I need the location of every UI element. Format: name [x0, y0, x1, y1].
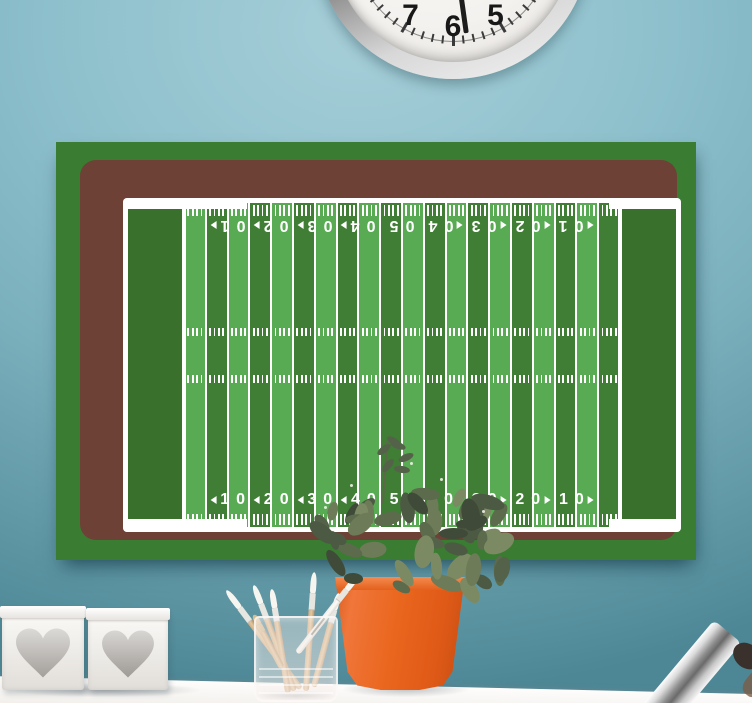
hash-mark-upper [296, 328, 298, 336]
hash-mark-upper [615, 328, 617, 336]
sideline-tick-top [449, 205, 451, 216]
sideline-tick-bottom [283, 514, 285, 525]
hash-mark-upper [266, 328, 268, 336]
hash-mark-lower [196, 375, 198, 383]
goal-line-right [618, 203, 622, 527]
hash-mark-upper [318, 328, 320, 336]
yard-digit: 0 [406, 217, 415, 233]
hash-mark-lower [462, 375, 464, 383]
sideline-tick-top [362, 205, 364, 216]
sideline-tick-bottom [593, 514, 595, 525]
yard-arrow-left [210, 221, 216, 229]
hash-mark-upper [480, 328, 482, 336]
hash-mark-upper [192, 328, 194, 336]
hash-mark-upper [410, 328, 412, 336]
yard-digit: 1 [559, 492, 568, 508]
sideline-tick-top [262, 205, 264, 216]
hash-mark-lower [353, 375, 355, 383]
five-yard-stripe [184, 203, 206, 527]
hash-mark-upper [606, 328, 608, 336]
plant-white-speck [440, 478, 443, 481]
hash-mark-lower [610, 375, 612, 383]
yard-digits: 50 [390, 217, 415, 233]
plant-white-speck [324, 506, 327, 509]
hash-mark-upper [427, 328, 429, 336]
yard-arrow-right [501, 221, 507, 229]
hash-mark-lower [362, 375, 364, 383]
sideline-tick-bottom [545, 514, 547, 525]
yard-number: 40 [341, 217, 376, 233]
sideline-tick-top [606, 205, 608, 216]
hash-mark-upper [253, 328, 255, 336]
sideline-tick-top [331, 205, 333, 216]
yard-digit: 0 [280, 492, 289, 508]
sideline-tick-top [453, 205, 455, 216]
yard-digit: 0 [488, 217, 497, 233]
hash-mark-upper [375, 328, 377, 336]
hash-mark-lower [327, 375, 329, 383]
hash-mark-lower [602, 375, 604, 383]
hash-mark-lower [266, 375, 268, 383]
hash-mark-upper [218, 328, 220, 336]
yard-number: 50 [390, 217, 415, 233]
yard-number: 20 [254, 217, 289, 233]
sideline-tick-top [593, 205, 595, 216]
hash-mark-upper [589, 328, 591, 336]
heart-box-right [88, 612, 168, 690]
sideline-tick-top [514, 205, 516, 216]
hash-mark-upper [545, 328, 547, 336]
yard-digit: 1 [220, 217, 229, 233]
sideline-tick-top [392, 205, 394, 216]
sideline-tick-bottom [536, 514, 538, 525]
cup-ridges [259, 668, 333, 696]
sideline-tick-top [384, 205, 386, 216]
hash-mark-lower [240, 375, 242, 383]
sideline-tick-top [323, 205, 325, 216]
hash-mark-lower [475, 375, 477, 383]
sideline-tick-top [549, 205, 551, 216]
hash-mark-lower [279, 375, 281, 383]
hash-mark-upper [371, 328, 373, 336]
hash-mark-lower [414, 375, 416, 383]
hash-mark-lower [209, 375, 211, 383]
five-yard-stripe [206, 203, 228, 527]
hash-mark-lower [497, 375, 499, 383]
sideline-tick-top [458, 205, 460, 216]
sideline-tick-top [340, 205, 342, 216]
room-scene: 765 102030405040302010102030405040302010 [0, 0, 752, 703]
hash-mark-lower [405, 375, 407, 383]
hash-mark-upper [501, 328, 503, 336]
sideline-tick-top [536, 205, 538, 216]
plant-white-speck [410, 462, 413, 465]
yard-digits: 30 [307, 217, 332, 233]
yard-line [575, 203, 577, 527]
yard-digit: 3 [472, 217, 481, 233]
thick-border-bottom-left [123, 519, 247, 532]
sideline-tick-bottom [275, 514, 277, 525]
sideline-tick-top [405, 205, 407, 216]
sideline-tick-top [296, 205, 298, 216]
hash-mark-upper [449, 328, 451, 336]
sideline-tick-bottom [279, 514, 281, 525]
yard-arrow-right [588, 496, 594, 504]
yard-digit: 0 [531, 217, 540, 233]
hash-mark-lower [244, 375, 246, 383]
plant-leaf [326, 501, 341, 522]
plant-leaf [373, 509, 403, 528]
yard-digit: 0 [236, 217, 245, 233]
sideline-tick-top [318, 205, 320, 216]
yard-digit: 4 [351, 217, 360, 233]
hash-mark-lower [436, 375, 438, 383]
sideline-tick-top [584, 205, 586, 216]
hash-mark-upper [279, 328, 281, 336]
hash-mark-lower [541, 375, 543, 383]
hash-mark-lower [318, 375, 320, 383]
hash-mark-upper [462, 328, 464, 336]
yard-digit: 0 [236, 492, 245, 508]
plant-leaf [358, 540, 387, 558]
yard-number: 20 [515, 492, 550, 508]
hash-mark-upper [384, 328, 386, 336]
yard-digit: 0 [444, 217, 453, 233]
hash-mark-lower [519, 375, 521, 383]
sideline-tick-top [414, 205, 416, 216]
sideline-tick-top [558, 205, 560, 216]
hash-mark-upper [523, 328, 525, 336]
hash-mark-lower [528, 375, 530, 383]
yard-digits: 30 [472, 217, 497, 233]
hash-mark-upper [262, 328, 264, 336]
clock-number: 5 [487, 0, 504, 33]
sideline-tick-bottom [571, 514, 573, 525]
hash-mark-upper [305, 328, 307, 336]
yard-number: 20 [515, 217, 550, 233]
hash-mark-lower [384, 375, 386, 383]
yard-digits: 20 [515, 492, 540, 508]
sideline-tick-top [519, 205, 521, 216]
hash-mark-upper [235, 328, 237, 336]
hash-mark-upper [240, 328, 242, 336]
sideline-tick-top [253, 205, 255, 216]
hash-mark-lower [253, 375, 255, 383]
hash-mark-lower [388, 375, 390, 383]
hash-mark-lower [589, 375, 591, 383]
sideline-tick-bottom [266, 514, 268, 525]
yard-arrow-right [457, 221, 463, 229]
yard-digits: 10 [559, 492, 584, 508]
hash-mark-upper [366, 328, 368, 336]
hash-mark-upper [344, 328, 346, 336]
yard-number: 10 [559, 217, 594, 233]
yard-digit: 0 [531, 492, 540, 508]
potted-plant [290, 432, 514, 608]
sideline-tick-top [375, 205, 377, 216]
sideline-tick-top [266, 205, 268, 216]
hash-mark-lower [262, 375, 264, 383]
sideline-tick-top [419, 205, 421, 216]
hash-mark-lower [471, 375, 473, 383]
yard-arrow-left [297, 221, 303, 229]
hash-mark-lower [606, 375, 608, 383]
clock-number: 7 [402, 0, 419, 33]
hash-mark-lower [514, 375, 516, 383]
yard-digit: 0 [575, 217, 584, 233]
wall-clock: 765 [316, 0, 590, 79]
hash-mark-lower [187, 375, 189, 383]
sideline-tick-top [567, 205, 569, 216]
hash-mark-upper [310, 328, 312, 336]
yard-number: 30 [297, 217, 332, 233]
hash-mark-upper [593, 328, 595, 336]
hash-mark-lower [545, 375, 547, 383]
hash-mark-upper [301, 328, 303, 336]
yard-digit: 0 [280, 217, 289, 233]
hash-mark-upper [231, 328, 233, 336]
hash-mark-upper [283, 328, 285, 336]
hash-mark-lower [615, 375, 617, 383]
hash-mark-upper [436, 328, 438, 336]
hash-mark-upper [493, 328, 495, 336]
yard-line [227, 203, 229, 527]
sideline-tick-bottom [541, 514, 543, 525]
hash-mark-lower [222, 375, 224, 383]
yard-line [554, 203, 556, 527]
hash-mark-upper [580, 328, 582, 336]
hash-mark-upper [327, 328, 329, 336]
sideline-tick-bottom [549, 514, 551, 525]
yard-digits: 20 [264, 492, 289, 508]
yard-digits: 20 [515, 217, 540, 233]
glass-cup [254, 616, 338, 702]
hash-mark-lower [493, 375, 495, 383]
yard-digits: 10 [559, 217, 584, 233]
hash-mark-upper [432, 328, 434, 336]
yard-digit: 1 [220, 492, 229, 508]
five-yard-stripe [533, 203, 555, 527]
sideline-tick-bottom [262, 514, 264, 525]
chrome-reflection [739, 665, 752, 701]
hash-mark-lower [275, 375, 277, 383]
hash-mark-upper [288, 328, 290, 336]
hash-mark-upper [536, 328, 538, 336]
hash-mark-upper [519, 328, 521, 336]
thick-border-bottom-right [609, 519, 681, 532]
yard-digit: 2 [515, 217, 524, 233]
hash-mark-upper [349, 328, 351, 336]
hash-mark-upper [549, 328, 551, 336]
sideline-tick-bottom [514, 514, 516, 525]
yard-digit: 2 [264, 217, 273, 233]
five-yard-stripe [249, 203, 271, 527]
plant-white-speck [350, 484, 353, 487]
hash-mark-upper [528, 328, 530, 336]
sideline-tick-top [475, 205, 477, 216]
sideline-tick-top [275, 205, 277, 216]
hash-mark-lower [449, 375, 451, 383]
hash-mark-lower [296, 375, 298, 383]
hash-mark-upper [414, 328, 416, 336]
yard-arrow-left [210, 496, 216, 504]
yard-arrow-right [544, 496, 550, 504]
hash-mark-lower [584, 375, 586, 383]
hash-mark-lower [580, 375, 582, 383]
hash-mark-lower [305, 375, 307, 383]
sideline-tick-top [353, 205, 355, 216]
chrome-object [686, 628, 752, 703]
sideline-tick-top [501, 205, 503, 216]
yard-arrow-left [254, 221, 260, 229]
yard-digit: 0 [323, 217, 332, 233]
yard-number: 10 [559, 492, 594, 508]
hash-mark-upper [497, 328, 499, 336]
hash-mark-upper [392, 328, 394, 336]
sideline-tick-top [305, 205, 307, 216]
hash-mark-upper [405, 328, 407, 336]
hash-mark-lower [397, 375, 399, 383]
thick-border-top-left [123, 198, 247, 209]
yard-number: 40 [428, 217, 463, 233]
sideline-tick-top [493, 205, 495, 216]
sideline-tick-top [327, 205, 329, 216]
hash-mark-upper [458, 328, 460, 336]
yard-line [532, 203, 534, 527]
endzone-left [128, 203, 184, 527]
hash-mark-upper [201, 328, 203, 336]
sideline-tick-top [602, 205, 604, 216]
hash-mark-lower [523, 375, 525, 383]
hash-mark-upper [453, 328, 455, 336]
sideline-tick-bottom [580, 514, 582, 525]
hash-mark-upper [562, 328, 564, 336]
hash-mark-lower [214, 375, 216, 383]
hash-mark-upper [340, 328, 342, 336]
yard-arrow-left [254, 496, 260, 504]
hash-mark-upper [506, 328, 508, 336]
sideline-tick-top [410, 205, 412, 216]
sideline-tick-bottom [558, 514, 560, 525]
hash-mark-upper [440, 328, 442, 336]
plant-leaf [439, 528, 468, 539]
hash-mark-lower [410, 375, 412, 383]
hash-mark-lower [301, 375, 303, 383]
sideline-tick-bottom [257, 514, 259, 525]
yard-digits: 40 [351, 217, 376, 233]
sideline-tick-top [310, 205, 312, 216]
hash-mark-upper [419, 328, 421, 336]
heart-cutout [16, 629, 70, 678]
hash-mark-upper [196, 328, 198, 336]
sideline-tick-top [480, 205, 482, 216]
hash-mark-upper [541, 328, 543, 336]
hash-mark-upper [257, 328, 259, 336]
yard-line [248, 203, 250, 527]
hash-mark-lower [392, 375, 394, 383]
sideline-tick-bottom [606, 514, 608, 525]
hash-mark-upper [353, 328, 355, 336]
yard-digit: 1 [559, 217, 568, 233]
hash-mark-lower [558, 375, 560, 383]
hash-mark-lower [218, 375, 220, 383]
sideline-tick-bottom [523, 514, 525, 525]
yard-digits: 10 [220, 217, 245, 233]
sideline-tick-bottom [528, 514, 530, 525]
hash-mark-upper [275, 328, 277, 336]
sideline-tick-top [283, 205, 285, 216]
hash-mark-lower [440, 375, 442, 383]
sideline-tick-top [371, 205, 373, 216]
sideline-tick-top [506, 205, 508, 216]
hash-mark-lower [257, 375, 259, 383]
hash-mark-lower [571, 375, 573, 383]
hash-mark-lower [536, 375, 538, 383]
hash-mark-lower [419, 375, 421, 383]
heart-box-lid [86, 608, 171, 620]
hash-mark-lower [593, 375, 595, 383]
hash-mark-lower [349, 375, 351, 383]
sideline-tick-bottom [589, 514, 591, 525]
hash-mark-lower [427, 375, 429, 383]
sideline-tick-top [523, 205, 525, 216]
hash-mark-lower [562, 375, 564, 383]
sideline-tick-bottom [519, 514, 521, 525]
sideline-tick-top [349, 205, 351, 216]
sideline-tick-top [397, 205, 399, 216]
sideline-tick-top [484, 205, 486, 216]
hash-mark-lower [231, 375, 233, 383]
yard-line [205, 203, 207, 527]
hash-mark-lower [288, 375, 290, 383]
hash-mark-upper [362, 328, 364, 336]
heart-box-lid [0, 606, 86, 618]
hash-mark-upper [331, 328, 333, 336]
yard-number: 30 [472, 217, 507, 233]
hash-mark-lower [235, 375, 237, 383]
hash-mark-upper [558, 328, 560, 336]
yard-number: 10 [210, 492, 245, 508]
sideline-tick-top [541, 205, 543, 216]
yard-arrow-left [341, 221, 347, 229]
plant-leaf [344, 573, 364, 585]
heart-box-left [2, 610, 84, 690]
sideline-tick-top [497, 205, 499, 216]
clock-number: 6 [445, 10, 462, 44]
hash-mark-lower [344, 375, 346, 383]
sideline-tick-top [301, 205, 303, 216]
heart-cutout [102, 631, 154, 678]
sideline-tick-top [545, 205, 547, 216]
hash-mark-upper [471, 328, 473, 336]
hash-mark-lower [484, 375, 486, 383]
hash-mark-lower [375, 375, 377, 383]
hash-mark-upper [187, 328, 189, 336]
hash-mark-lower [458, 375, 460, 383]
yard-digit: 2 [264, 492, 273, 508]
sideline-tick-top [589, 205, 591, 216]
five-yard-stripe [228, 203, 250, 527]
hash-mark-lower [310, 375, 312, 383]
sideline-tick-bottom [567, 514, 569, 525]
hash-mark-upper [567, 328, 569, 336]
sideline-tick-top [571, 205, 573, 216]
sideline-tick-top [580, 205, 582, 216]
hash-mark-upper [214, 328, 216, 336]
sideline-tick-bottom [584, 514, 586, 525]
sideline-tick-top [366, 205, 368, 216]
sideline-tick-bottom [562, 514, 564, 525]
